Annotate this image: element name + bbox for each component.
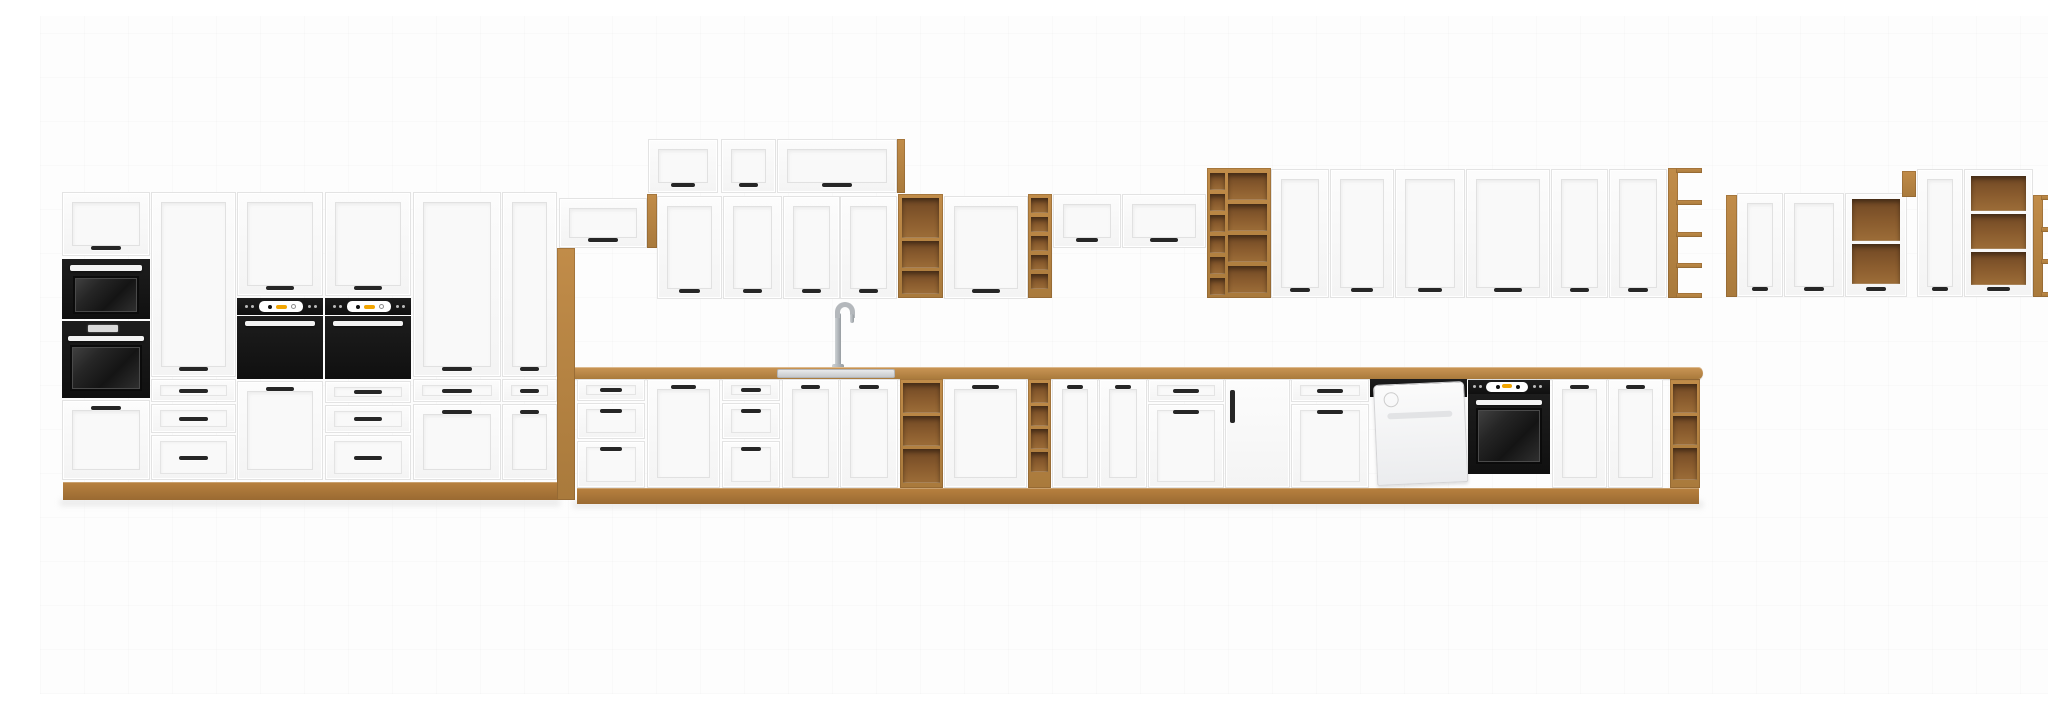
power-indicator [1502, 384, 1512, 388]
plinth-left-bank [63, 482, 557, 500]
corner-shelf-fin [1676, 293, 1702, 298]
cabinet-handle [859, 385, 878, 389]
cabinet-handle [179, 417, 207, 421]
wine-cell [1210, 236, 1225, 253]
cabinet-handle [91, 246, 120, 250]
wall-cabinet-door [1466, 169, 1550, 298]
wall-cabinet-door [325, 192, 411, 296]
cabinet-handle [1570, 288, 1589, 292]
corner-shelf-fin [2041, 292, 2048, 297]
countertop [575, 367, 1703, 379]
floor-shadow-left [60, 499, 560, 506]
ctrl-mark [314, 305, 317, 308]
cabinet-handle [739, 183, 757, 187]
wall-cabinet-door [657, 196, 722, 299]
microwave-window [73, 276, 139, 314]
wine-cell [1210, 173, 1225, 190]
oven-tower-base-door [62, 400, 150, 480]
cabinet-handle [354, 456, 382, 460]
wine-cell [1031, 429, 1048, 449]
shelf-niche [902, 271, 939, 294]
shelf-niche [1852, 244, 1900, 284]
shelf-niche [1673, 416, 1697, 445]
oven-handle-bar [68, 336, 144, 341]
cabinet-handle [801, 385, 820, 389]
base-drawer-front [1291, 404, 1369, 488]
cabinet-handle [600, 447, 622, 451]
wine-cell [1031, 236, 1048, 251]
cabinet-handle [1932, 287, 1948, 291]
cabinet-handle [671, 183, 694, 187]
shelf-niche [1228, 204, 1267, 231]
corner-shelf-fin [2041, 195, 2048, 200]
knob [268, 305, 272, 309]
cabinet-handle [1067, 385, 1083, 389]
cabinet-handle [354, 286, 382, 290]
wall-cabinet-door [1330, 169, 1394, 298]
side-strip [647, 194, 657, 248]
cabinet-handle [442, 410, 471, 414]
cabinet-handle [1494, 288, 1522, 292]
cabinet-handle [741, 447, 760, 451]
pantry-door [413, 192, 501, 377]
cabinet-handle [802, 289, 821, 293]
cabinet-handle [822, 183, 852, 187]
pantry-door [151, 192, 236, 377]
cabinet-handle [1076, 238, 1098, 242]
side-strip [897, 139, 905, 193]
corner-shelf-fin [2041, 227, 2048, 232]
power-indicator [276, 305, 287, 309]
shelf-niche [1228, 173, 1267, 200]
cabinet-handle [1418, 288, 1441, 292]
corner-shelf-fin [2041, 259, 2048, 264]
cabinet-handle [600, 388, 622, 392]
ctrl-mark [1479, 385, 1482, 388]
shelf-niche [1673, 384, 1697, 413]
side-strip [1726, 195, 1737, 297]
side-panel [557, 248, 575, 500]
wall-cabinet-door [723, 196, 782, 299]
cabinet-handle [1626, 385, 1644, 389]
cabinet-handle [266, 286, 294, 290]
cabinet-handle [1173, 410, 1198, 414]
corner-shelf-panel [2033, 195, 2043, 297]
knob-ring [291, 304, 296, 309]
cabinet-handle [1351, 288, 1372, 292]
shelf-niche [1228, 235, 1267, 262]
cabinet-handle [671, 385, 695, 389]
ctrl-mark [396, 305, 399, 308]
cabinet-handle [520, 410, 538, 414]
wine-cell [1210, 257, 1225, 274]
sink-base-door [840, 379, 898, 488]
ctrl-mark [402, 305, 405, 308]
corner-shelf-fin [1676, 232, 1702, 237]
cabinet-handle [179, 456, 207, 460]
ctrl-mark [339, 305, 342, 308]
power-indicator [364, 305, 375, 309]
wine-cell [1031, 198, 1048, 213]
shelf-niche [902, 198, 939, 238]
cabinet-handle [354, 417, 382, 421]
cabinet-handle [179, 367, 207, 371]
wine-cell [1031, 452, 1048, 472]
base-drawer-front [1148, 404, 1224, 488]
wall-cabinet-door [1609, 169, 1667, 298]
oven-handle-bar [245, 321, 315, 326]
cabinet-handle [741, 409, 760, 413]
wall-cabinet-door [1737, 193, 1783, 297]
shelf-niche [1971, 176, 2026, 211]
microwave-handle-bar [70, 265, 142, 271]
cabinet-handle [972, 289, 1000, 293]
shelf-niche [1673, 448, 1697, 480]
base-door [1099, 379, 1147, 488]
knob [1496, 385, 1500, 389]
corner-shelf-fin [1676, 200, 1702, 205]
corner-shelf-fin [1676, 263, 1702, 268]
corner-filler [1902, 171, 1916, 197]
wine-cell [1210, 278, 1225, 295]
shelf-niche [902, 241, 939, 268]
ctrl-mark [1473, 385, 1476, 388]
oven-window [70, 345, 142, 391]
base-door [1552, 379, 1607, 488]
cabinet-handle [1866, 287, 1886, 291]
cabinet-handle [1804, 287, 1824, 291]
cabinet-handle [1150, 238, 1178, 242]
ctrl-mark [333, 305, 336, 308]
cabinet-handle [91, 406, 120, 410]
knob [1516, 385, 1520, 389]
wall-cabinet-door [1784, 193, 1844, 297]
base-door [1052, 379, 1098, 488]
kitchen-scene [40, 16, 2048, 694]
wall-cabinet-door [237, 192, 323, 296]
cabinet-handle [442, 367, 471, 371]
wall-cabinet-door [783, 196, 840, 299]
cabinet-handle [1628, 288, 1647, 292]
shelf-niche [1852, 199, 1900, 241]
base-door [237, 381, 323, 480]
wall-cabinet-door [1395, 169, 1465, 298]
cabinet-handle [1317, 410, 1343, 414]
knob [356, 305, 360, 309]
cabinet-handle [1317, 389, 1343, 393]
cabinet-handle [442, 389, 471, 393]
wall-cabinet-door [1917, 169, 1963, 297]
wine-cell [1031, 255, 1048, 270]
pantry-door [502, 192, 557, 377]
sink-base-door [782, 379, 839, 488]
knob-ring [379, 304, 384, 309]
plinth-base-run [577, 488, 1699, 504]
corner-shelf-fin [1676, 168, 1702, 173]
ctrl-mark [251, 305, 254, 308]
ctrl-mark [245, 305, 248, 308]
wine-cell [1210, 215, 1225, 232]
base-door [1608, 379, 1663, 488]
cabinet-handle [600, 409, 622, 413]
cabinet-handle [1173, 389, 1198, 393]
wall-cabinet-door [1271, 169, 1329, 298]
shelf-niche [1971, 252, 2026, 285]
ctrl-mark [1533, 385, 1536, 388]
cabinet-handle [266, 387, 294, 391]
cabinet-handle [520, 367, 538, 371]
oven-handle-bar [1476, 400, 1542, 405]
wall-cabinet-door [1551, 169, 1608, 298]
oven-display [88, 325, 118, 332]
cabinet-handle [1570, 385, 1588, 389]
shelf-niche [1971, 214, 2026, 249]
wall-cabinet-door [944, 196, 1028, 299]
cabinet-handle [354, 390, 382, 394]
cabinet-handle [520, 389, 538, 393]
wine-cell [1210, 194, 1225, 211]
cabinet-handle [179, 389, 207, 393]
base-door [502, 404, 557, 480]
cabinet-handle [741, 388, 760, 392]
wine-cell [1031, 274, 1048, 289]
shelf-niche [1228, 266, 1267, 293]
dishwasher-door [1373, 381, 1468, 486]
oven-handle-bar [333, 321, 403, 326]
ctrl-mark [1539, 385, 1542, 388]
sink-rim [777, 369, 895, 378]
cabinet-handle [972, 385, 999, 389]
ctrl-mark [308, 305, 311, 308]
cabinet-handle [1987, 287, 2010, 291]
wall-cabinet-door [840, 196, 897, 299]
wine-cell [1031, 383, 1048, 403]
base-door [944, 379, 1027, 488]
cabinet-handle [859, 289, 878, 293]
cabinet-handle [1290, 288, 1309, 292]
shelf-niche [903, 449, 940, 483]
wine-cell [1031, 217, 1048, 232]
pullout-handle [1230, 390, 1235, 423]
cabinet-handle [1752, 287, 1768, 291]
shelf-niche [903, 383, 940, 413]
cabinet-handle [743, 289, 762, 293]
cabinet-handle [1115, 385, 1131, 389]
wine-cell [1031, 406, 1048, 426]
faucet-stem [835, 313, 841, 369]
faucet-spout [850, 314, 854, 323]
base-door [647, 379, 720, 488]
cabinet-handle [679, 289, 700, 293]
base-door [413, 404, 501, 480]
shelf-niche [903, 416, 940, 446]
cabinet-handle [588, 238, 617, 242]
oven-window [1476, 408, 1542, 464]
